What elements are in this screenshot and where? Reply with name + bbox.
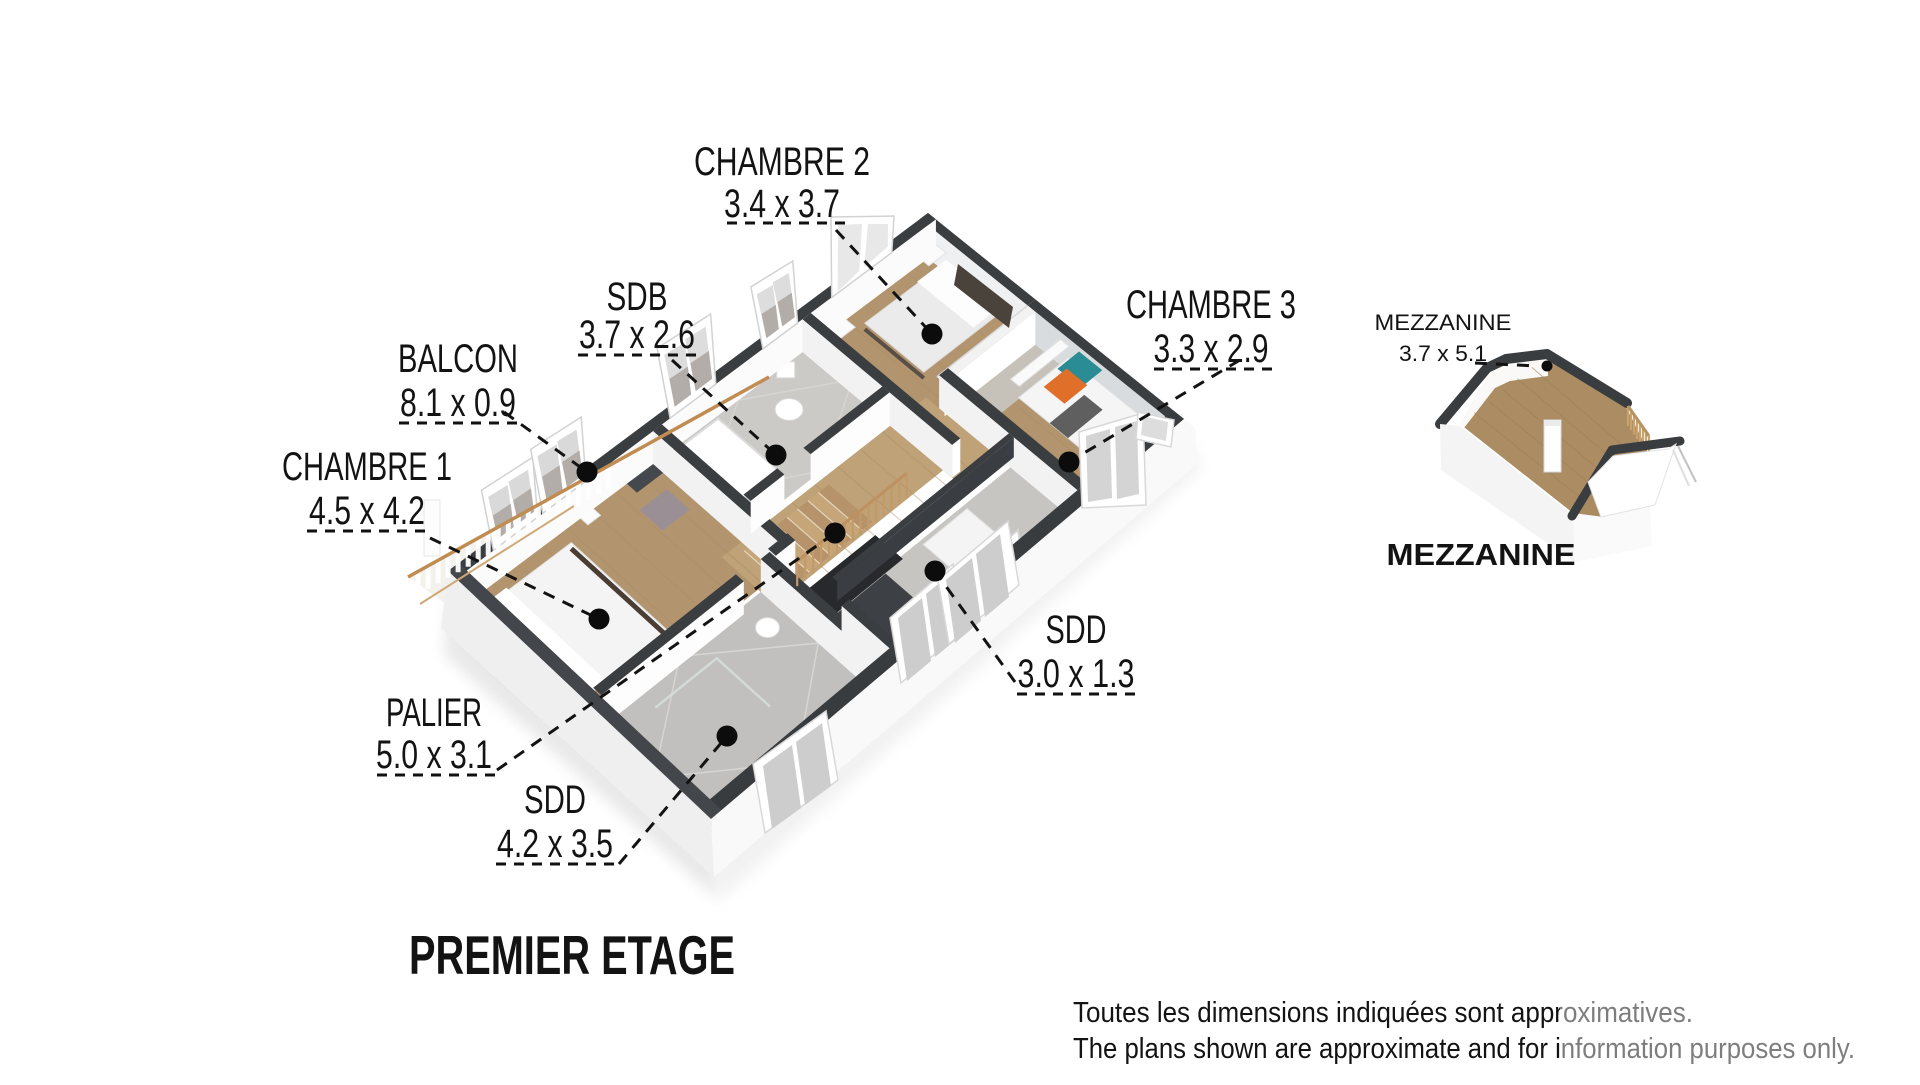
svg-text:SDD: SDD [524, 778, 586, 822]
svg-text:PREMIER ETAGE: PREMIER ETAGE [409, 924, 735, 986]
svg-text:4.2 x 3.5: 4.2 x 3.5 [497, 822, 613, 866]
svg-text:MEZZANINE: MEZZANINE [1387, 537, 1576, 572]
svg-text:3.0 x 1.3: 3.0 x 1.3 [1018, 652, 1135, 696]
svg-text:3.7 x 5.1: 3.7 x 5.1 [1399, 341, 1487, 366]
svg-text:PALIER: PALIER [386, 691, 482, 735]
svg-text:3.3 x 2.9: 3.3 x 2.9 [1154, 327, 1269, 371]
svg-text:5.0 x 3.1: 5.0 x 3.1 [376, 733, 492, 777]
svg-text:3.7 x 2.6: 3.7 x 2.6 [579, 313, 695, 357]
svg-text:CHAMBRE 2: CHAMBRE 2 [694, 140, 870, 184]
svg-text:BALCON: BALCON [398, 337, 518, 381]
svg-text:MEZZANINE: MEZZANINE [1375, 310, 1512, 335]
svg-text:3.4 x 3.7: 3.4 x 3.7 [724, 182, 840, 226]
svg-text:CHAMBRE 1: CHAMBRE 1 [282, 445, 452, 489]
svg-text:CHAMBRE 3: CHAMBRE 3 [1126, 283, 1296, 327]
svg-text:SDD: SDD [1046, 608, 1107, 652]
svg-text:4.5 x 4.2: 4.5 x 4.2 [309, 489, 425, 533]
svg-text:8.1 x 0.9: 8.1 x 0.9 [400, 381, 516, 425]
